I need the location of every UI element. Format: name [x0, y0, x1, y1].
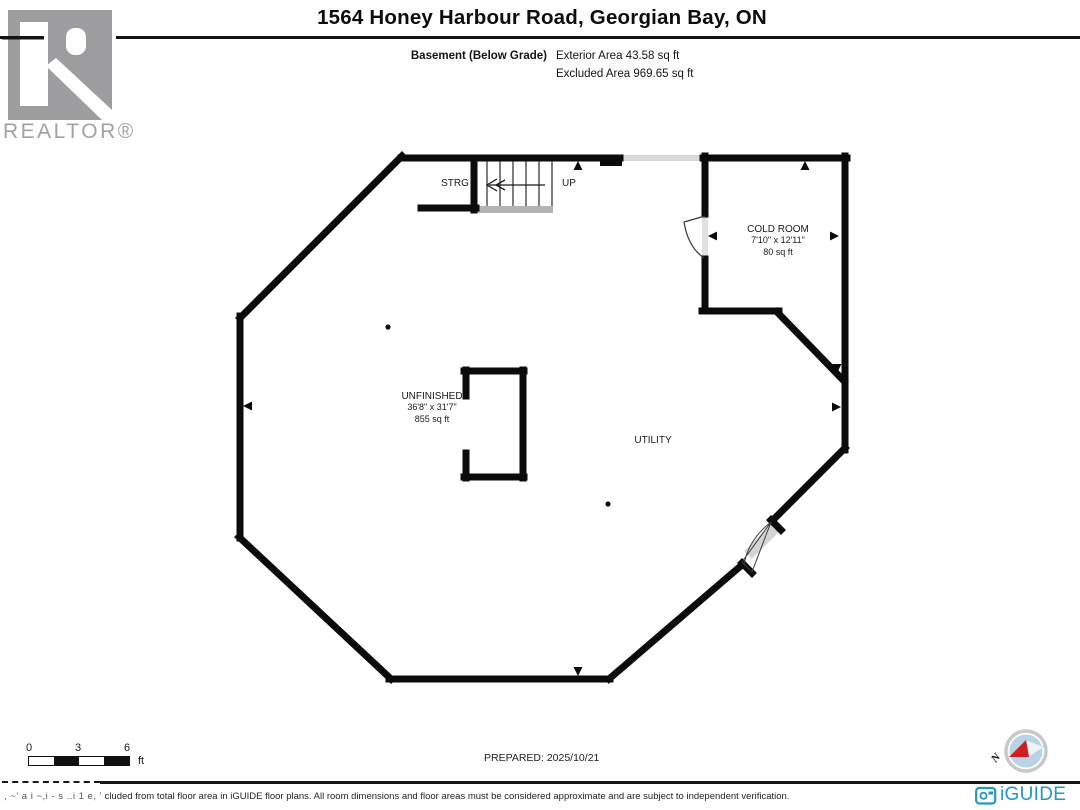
room-label-unfinished: UNFINISHED 36'8" x 31'7" 855 sq ft: [401, 391, 462, 425]
cold-room-dimensions: 7'10" x 12'11": [747, 235, 809, 247]
room-label-cold-room: COLD ROOM 7'10" x 12'11" 80 sq ft: [747, 224, 809, 258]
room-label-strg: STRG: [441, 178, 469, 189]
unfinished-area: 855 sq ft: [401, 414, 462, 426]
cold-room-name: COLD ROOM: [747, 224, 809, 235]
cold-room-door-swing: [684, 216, 705, 258]
lower-right-diagonal-wall-upper: [772, 448, 845, 521]
compass-icon: [1000, 726, 1054, 778]
arrow-down-bottom-wall: [574, 667, 583, 676]
stairs-up-label: UP: [562, 178, 576, 189]
utility-door-jamb-lower: [742, 563, 752, 573]
column-dot-2: [605, 501, 610, 506]
upper-left-diagonal-wall: [240, 156, 402, 318]
lower-right-diagonal-wall-lower: [609, 564, 743, 679]
column-dot-1: [385, 324, 390, 329]
lower-left-diagonal-wall: [239, 537, 391, 679]
unfinished-name: UNFINISHED: [401, 391, 462, 402]
iguide-camera-icon: [975, 786, 997, 805]
cold-room-diagonal-wall: [777, 312, 844, 381]
unfinished-enclosure-walls: [464, 370, 524, 478]
arrow-left-left-wall: [243, 402, 252, 411]
arrow-up-cold-room: [801, 161, 810, 170]
utility-door-threshold: [748, 528, 775, 555]
arrow-up-top-wall: [574, 161, 583, 170]
arrow-right-cold-room: [830, 232, 839, 241]
stair-up-arrow: [487, 179, 545, 191]
arrow-left-cold-room: [708, 232, 717, 241]
iguide-logo-text: iGUIDE: [1000, 784, 1066, 806]
room-label-utility: UTILITY: [634, 435, 671, 446]
floor-plan-drawing: [0, 0, 1080, 810]
stair-treads: [487, 161, 552, 206]
arrow-right-right-wall: [832, 403, 841, 412]
cold-room-area: 80 sq ft: [747, 247, 809, 259]
iguide-logo: iGUIDE: [975, 784, 1066, 806]
unfinished-dimensions: 36'8" x 31'7": [401, 402, 462, 414]
